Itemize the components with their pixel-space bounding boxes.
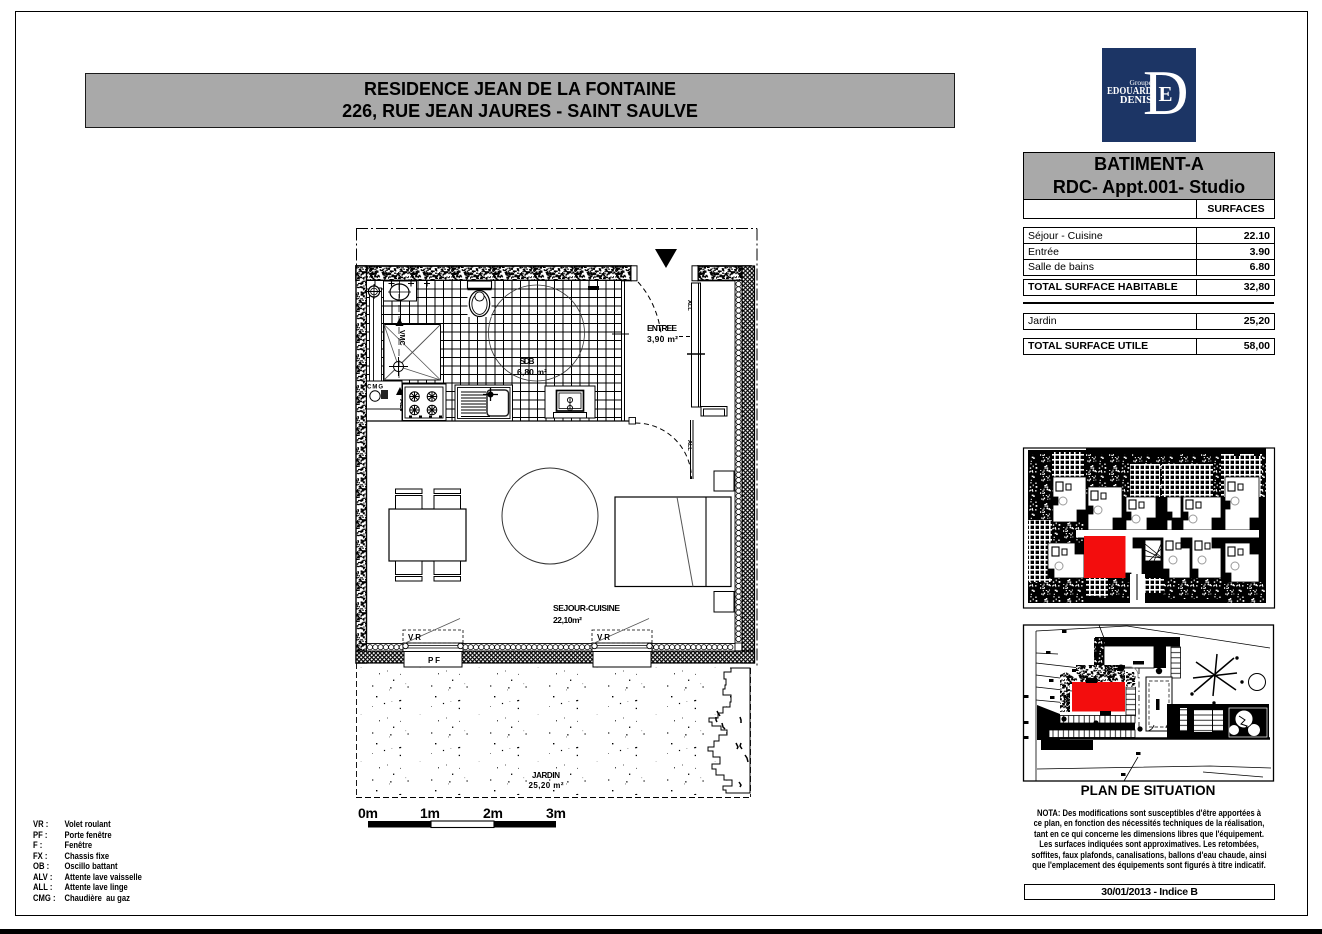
svg-text:SDB: SDB xyxy=(520,356,535,366)
svg-text:22,10m²: 22,10m² xyxy=(553,615,582,625)
svg-text:VR: VR xyxy=(597,633,610,642)
svg-text:2 m: 2 m xyxy=(483,805,503,821)
svg-text:3 m: 3 m xyxy=(546,805,566,821)
svg-text:1 m: 1 m xyxy=(420,805,440,821)
svg-text:JARDIN: JARDIN xyxy=(532,771,560,780)
svg-text:CMG: CMG xyxy=(367,385,383,391)
svg-text:25,20 m²: 25,20 m² xyxy=(529,781,564,790)
svg-text:ALL: ALL xyxy=(686,300,692,311)
svg-text:6,80 m²: 6,80 m² xyxy=(517,367,547,377)
svg-text:SEJOUR-CUISINE: SEJOUR-CUISINE xyxy=(553,603,620,613)
svg-text:ENTREE: ENTREE xyxy=(647,323,677,333)
svg-text:3,90 m²: 3,90 m² xyxy=(647,334,678,344)
svg-text:VR: VR xyxy=(408,633,421,642)
svg-text:ALL: ALL xyxy=(686,440,692,451)
svg-text:0 m: 0 m xyxy=(358,805,378,821)
